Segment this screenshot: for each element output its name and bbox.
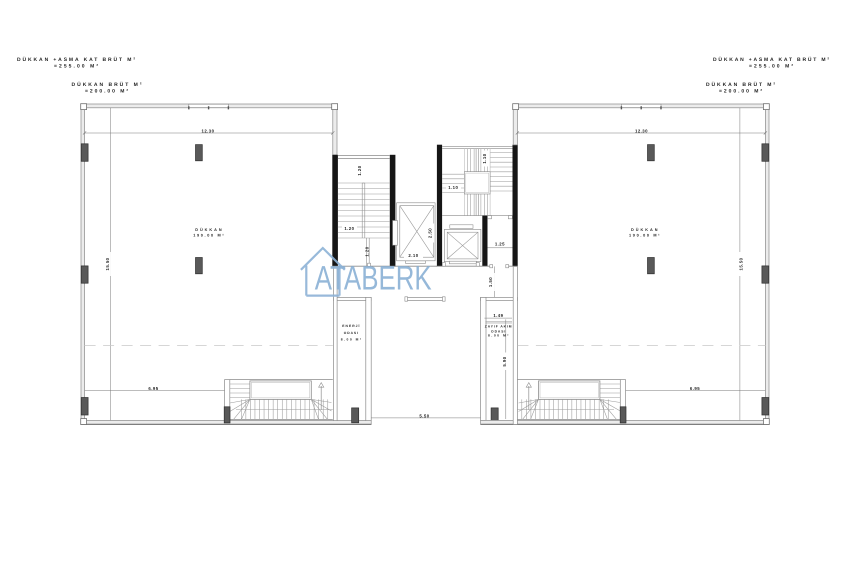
svg-text:6.95: 6.95: [148, 386, 158, 391]
svg-text:190.00 M²: 190.00 M²: [629, 233, 660, 237]
svg-text:DÜKKAN: DÜKKAN: [195, 227, 222, 232]
svg-text:5.50: 5.50: [419, 414, 429, 419]
svg-text:=255.00 M²: =255.00 M²: [54, 64, 98, 70]
svg-text:ENERJİ: ENERJİ: [342, 324, 359, 328]
svg-text:=255.00 M²: =255.00 M²: [749, 64, 793, 70]
svg-text:=200.00 M²: =200.00 M²: [85, 89, 128, 95]
svg-text:190.00 M²: 190.00 M²: [193, 233, 224, 237]
svg-text:ZAYIF AKIM: ZAYIF AKIM: [485, 325, 512, 329]
svg-text:1.20: 1.20: [344, 226, 354, 231]
svg-text:1.10: 1.10: [448, 185, 458, 190]
svg-text:6.95: 6.95: [690, 386, 700, 391]
svg-text:1.20: 1.20: [365, 246, 370, 256]
svg-text:1.50: 1.50: [488, 277, 493, 287]
svg-text:12.30: 12.30: [201, 128, 214, 133]
svg-text:DÜKKAN: DÜKKAN: [631, 227, 658, 232]
svg-text:ODASI: ODASI: [491, 329, 506, 333]
svg-text:15.50: 15.50: [105, 257, 110, 270]
svg-text:1.10: 1.10: [482, 153, 487, 163]
svg-text:15.50: 15.50: [739, 257, 744, 270]
svg-text:ATABERK: ATABERK: [315, 260, 432, 298]
svg-text:5.90: 5.90: [502, 356, 507, 366]
svg-text:2.50: 2.50: [427, 228, 432, 238]
svg-text:12.30: 12.30: [635, 128, 648, 133]
svg-text:=200.00 M²: =200.00 M²: [719, 89, 762, 95]
svg-text:1.49: 1.49: [493, 313, 503, 318]
svg-text:1.25: 1.25: [495, 241, 505, 246]
svg-text:ODASI: ODASI: [344, 331, 359, 335]
svg-text:2.10: 2.10: [408, 253, 418, 258]
svg-text:1.20: 1.20: [357, 165, 362, 175]
